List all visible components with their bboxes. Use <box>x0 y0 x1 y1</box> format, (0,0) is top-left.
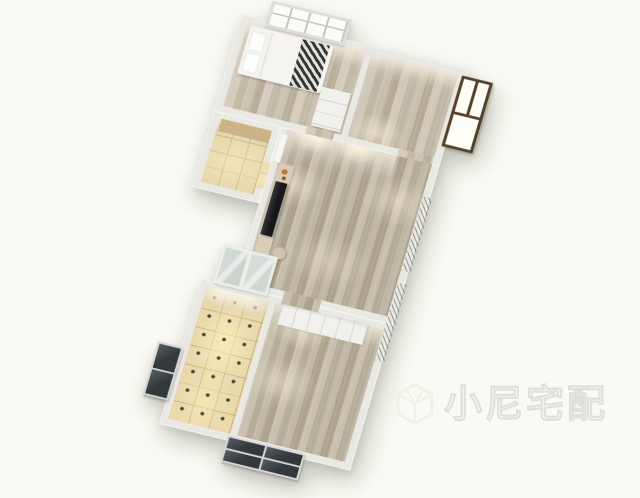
window-pane <box>445 114 479 150</box>
watermark: 小尼宅配 <box>392 381 608 427</box>
pillow <box>241 52 261 74</box>
window-pane <box>153 344 181 373</box>
pillow <box>247 31 267 53</box>
floor-plan-scene: 小尼宅配 <box>0 0 640 480</box>
isometric-cube-logo-icon <box>392 381 438 427</box>
window-pane <box>145 369 173 398</box>
apartment-render <box>124 14 468 471</box>
watermark-text: 小尼宅配 <box>444 385 608 423</box>
